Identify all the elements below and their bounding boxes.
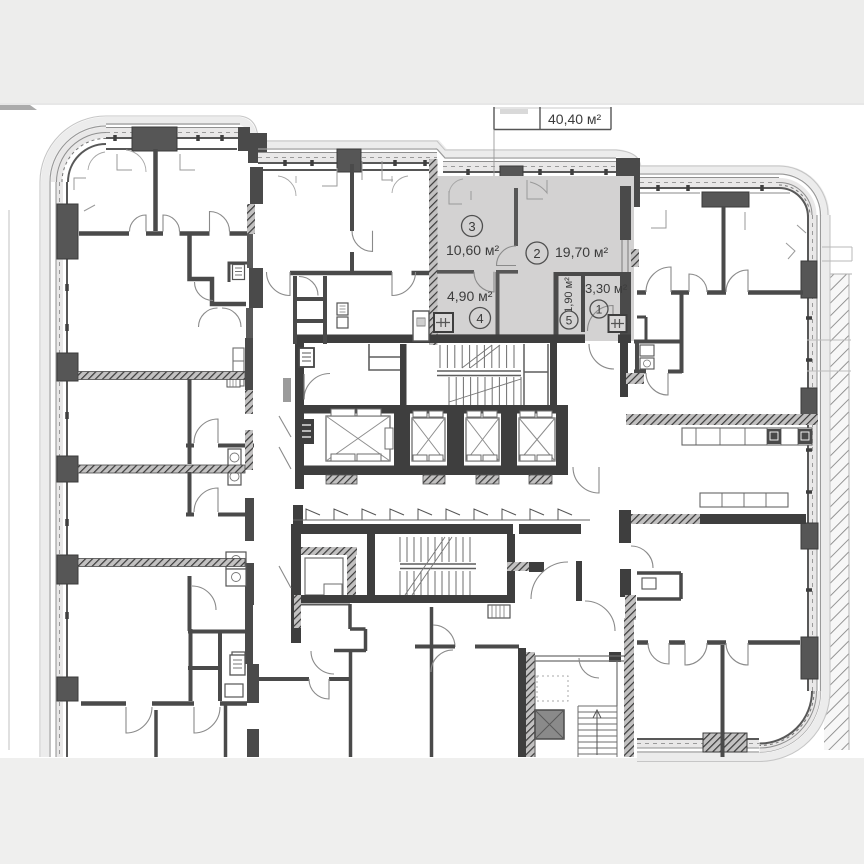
svg-text:4: 4 (476, 311, 483, 326)
svg-text:5: 5 (566, 314, 573, 328)
svg-text:10,60 м²: 10,60 м² (446, 242, 500, 258)
svg-text:1,90 м²: 1,90 м² (563, 277, 575, 313)
svg-text:19,70 м²: 19,70 м² (555, 244, 609, 260)
svg-text:40,40 м²: 40,40 м² (548, 111, 602, 127)
svg-text:3: 3 (468, 219, 475, 234)
svg-text:1: 1 (596, 303, 603, 317)
svg-text:4,90 м²: 4,90 м² (447, 288, 493, 304)
svg-text:2: 2 (533, 246, 540, 261)
svg-text:3,30 м²: 3,30 м² (585, 281, 628, 296)
